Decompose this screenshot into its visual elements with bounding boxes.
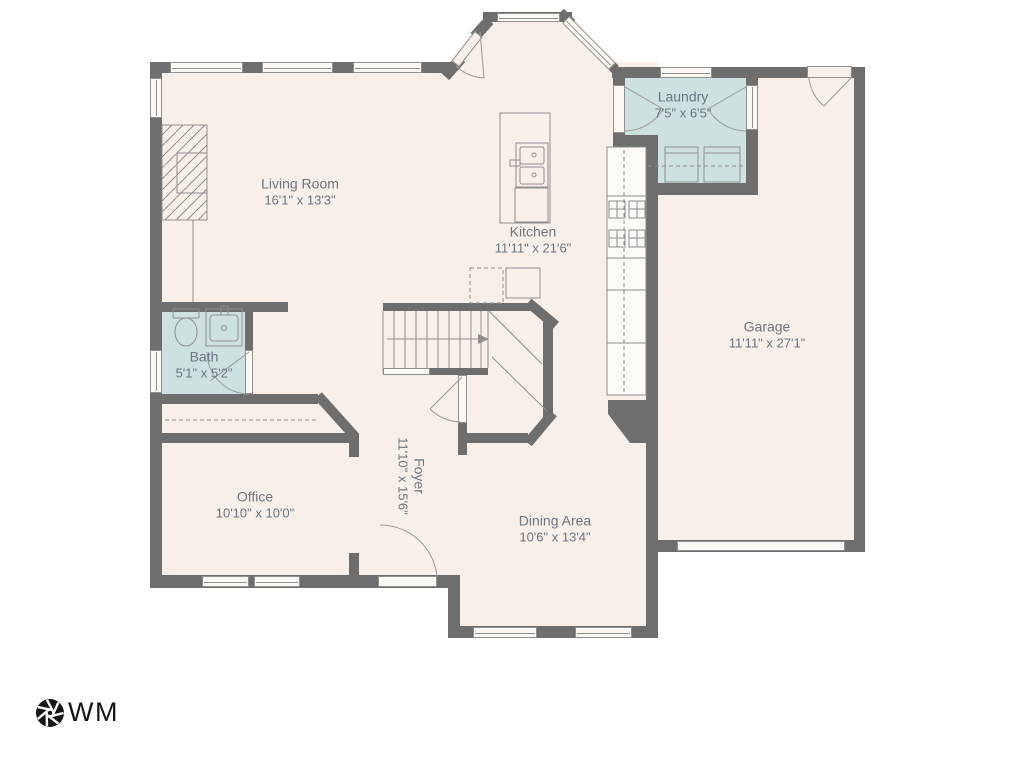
garage-door [677, 541, 845, 551]
wall-bath-bottom [150, 394, 318, 404]
window-living-2 [262, 62, 333, 73]
garage-entry-door-leaf [807, 66, 852, 78]
wall-bath-top [158, 302, 288, 312]
window-bay-top [497, 13, 560, 22]
wall-closet-stub [458, 423, 467, 455]
room-label-laundry: Laundry 7'5" x 6'5" [655, 89, 712, 122]
wall-kitchen-garage [646, 135, 658, 540]
wall-left-exterior [150, 62, 162, 588]
window-living-3 [353, 62, 422, 73]
window-laundry-top [660, 67, 712, 78]
room-label-kitchen: Kitchen 11'11" x 21'6" [495, 224, 572, 257]
wall-foyer-stub-bottom [349, 553, 359, 578]
logo-text: WM [68, 697, 119, 728]
wall-foyer-stub-top [349, 433, 359, 457]
window-dining-2 [575, 627, 632, 638]
window-left-bath [150, 350, 162, 393]
wall-stair-top [383, 303, 532, 311]
window-office-1 [202, 576, 249, 587]
wall-laundry-bottom [646, 183, 758, 195]
window-office-2 [254, 576, 300, 587]
wall-office-top [150, 433, 357, 443]
wall-closet-bottom [458, 433, 528, 443]
room-label-garage: Garage 11'11" x 27'1" [729, 319, 806, 352]
window-dining-1 [473, 627, 537, 638]
entry-door-leaf [378, 576, 437, 587]
closet-door-leaf [458, 375, 467, 423]
stair-open-edge [383, 368, 430, 375]
bath-door-opening [245, 350, 253, 394]
wall-garage-right [854, 67, 865, 552]
room-label-dining: Dining Area 10'6" x 13'4" [519, 513, 591, 546]
owm-logo: WM [35, 697, 119, 728]
wall-stair-right [543, 320, 553, 417]
aperture-icon [35, 698, 65, 728]
wall-stair-bottom [430, 368, 488, 375]
room-label-bath: Bath 5'1" x 5'2" [176, 349, 233, 382]
room-label-living: Living Room 16'1" x 13'3" [261, 176, 339, 209]
window-left-upper [150, 78, 162, 118]
floorplan-canvas: Living Room 16'1" x 13'3" Kitchen 11'11"… [0, 0, 1024, 768]
window-living-1 [170, 62, 243, 73]
window-laundry-garage [746, 85, 758, 130]
room-label-foyer: Foyer 11'10" x 15'6" [395, 437, 428, 515]
wall-bath-right [245, 302, 253, 352]
room-label-office: Office 10'10" x 10'0" [216, 489, 295, 522]
wall-laundry-notch [613, 135, 658, 147]
laundry-door-opening [613, 85, 625, 133]
